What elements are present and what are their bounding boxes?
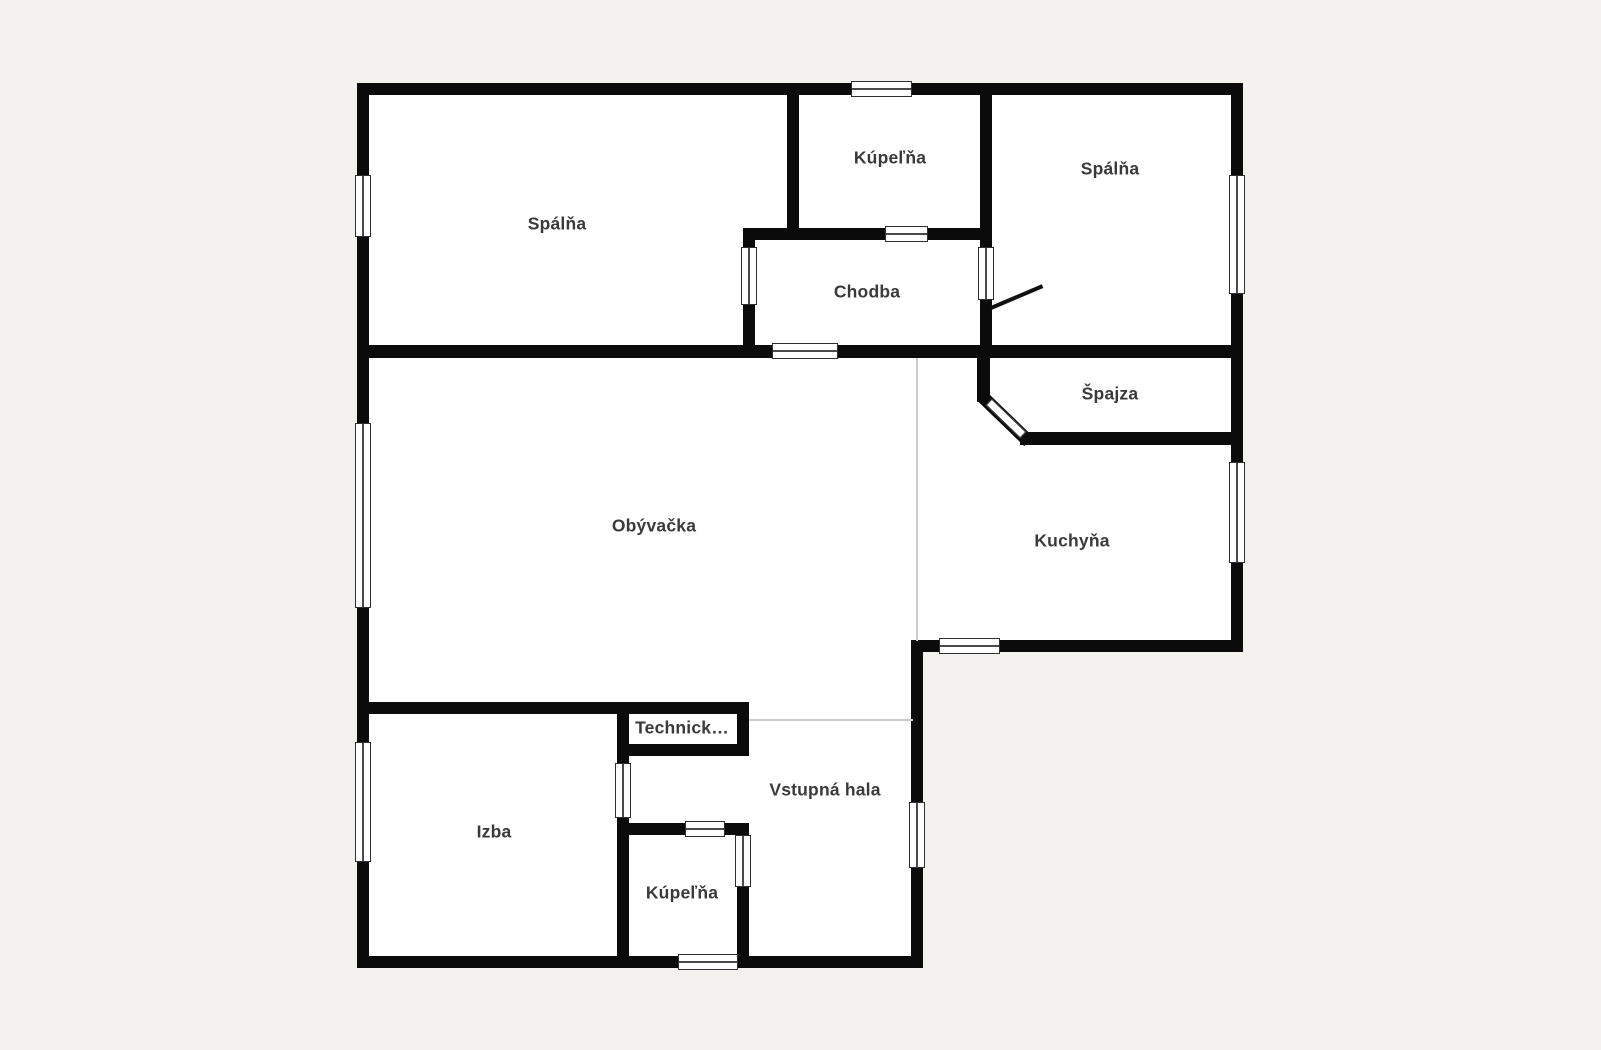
- room-label-entrance-hall: Vstupná hala: [769, 780, 880, 801]
- door-corridor-bedroom2: [978, 247, 994, 300]
- wall-bedroom1-bath: [787, 88, 799, 240]
- door-bath2-right: [735, 835, 751, 887]
- wall-bath2-top: [617, 823, 749, 835]
- room-label-bedroom-2: Spálňa: [1081, 159, 1140, 180]
- door-corridor-bath1: [885, 226, 928, 242]
- wall-technical-bottom: [617, 744, 749, 756]
- wall-outer-right: [1231, 83, 1243, 652]
- door-corridor-livingroom: [772, 343, 838, 359]
- door-bath2-hall: [685, 821, 725, 837]
- boundary-livingroom-hall: [749, 719, 913, 721]
- room-label-bathroom-1: Kúpeľňa: [854, 148, 926, 169]
- wall-corridor-right: [980, 88, 992, 358]
- wall-room-right: [617, 702, 629, 968]
- window-bedroom1-left: [355, 175, 371, 237]
- door-hall-entry: [909, 802, 925, 868]
- door-room-hall: [615, 763, 631, 818]
- room-label-room: Izba: [477, 822, 512, 843]
- room-label-technical: Technick…: [635, 718, 729, 739]
- window-bedroom2-right: [1229, 175, 1245, 294]
- wall-corridor-top: [743, 228, 992, 240]
- window-bath2-bottom: [678, 954, 738, 970]
- wall-pantry-bottom: [1020, 432, 1243, 445]
- room-label-bedroom-1: Spálňa: [528, 214, 587, 235]
- window-room-left: [355, 742, 371, 862]
- room-label-livingroom: Obývačka: [612, 516, 696, 537]
- window-kitchen-right: [1229, 462, 1245, 563]
- window-livingroom-left: [355, 423, 371, 608]
- room-label-corridor: Chodba: [834, 282, 900, 303]
- room-label-kitchen: Kuchyňa: [1034, 531, 1109, 552]
- floorplan-canvas: Spálňa Kúpeľňa Spálňa Chodba Špajza Obýv…: [0, 0, 1601, 1050]
- wall-livingroom-bottom: [357, 702, 749, 714]
- room-label-bathroom-2: Kúpeľňa: [646, 883, 718, 904]
- room-label-pantry: Špajza: [1082, 384, 1139, 405]
- boundary-livingroom-kitchen: [916, 358, 918, 641]
- wall-outer-top: [357, 83, 1243, 95]
- wall-outer-bottom: [357, 956, 923, 968]
- window-kitchen-bottom: [939, 638, 1000, 654]
- door-corridor-bedroom1: [741, 247, 757, 305]
- window-bath1-top: [851, 81, 912, 97]
